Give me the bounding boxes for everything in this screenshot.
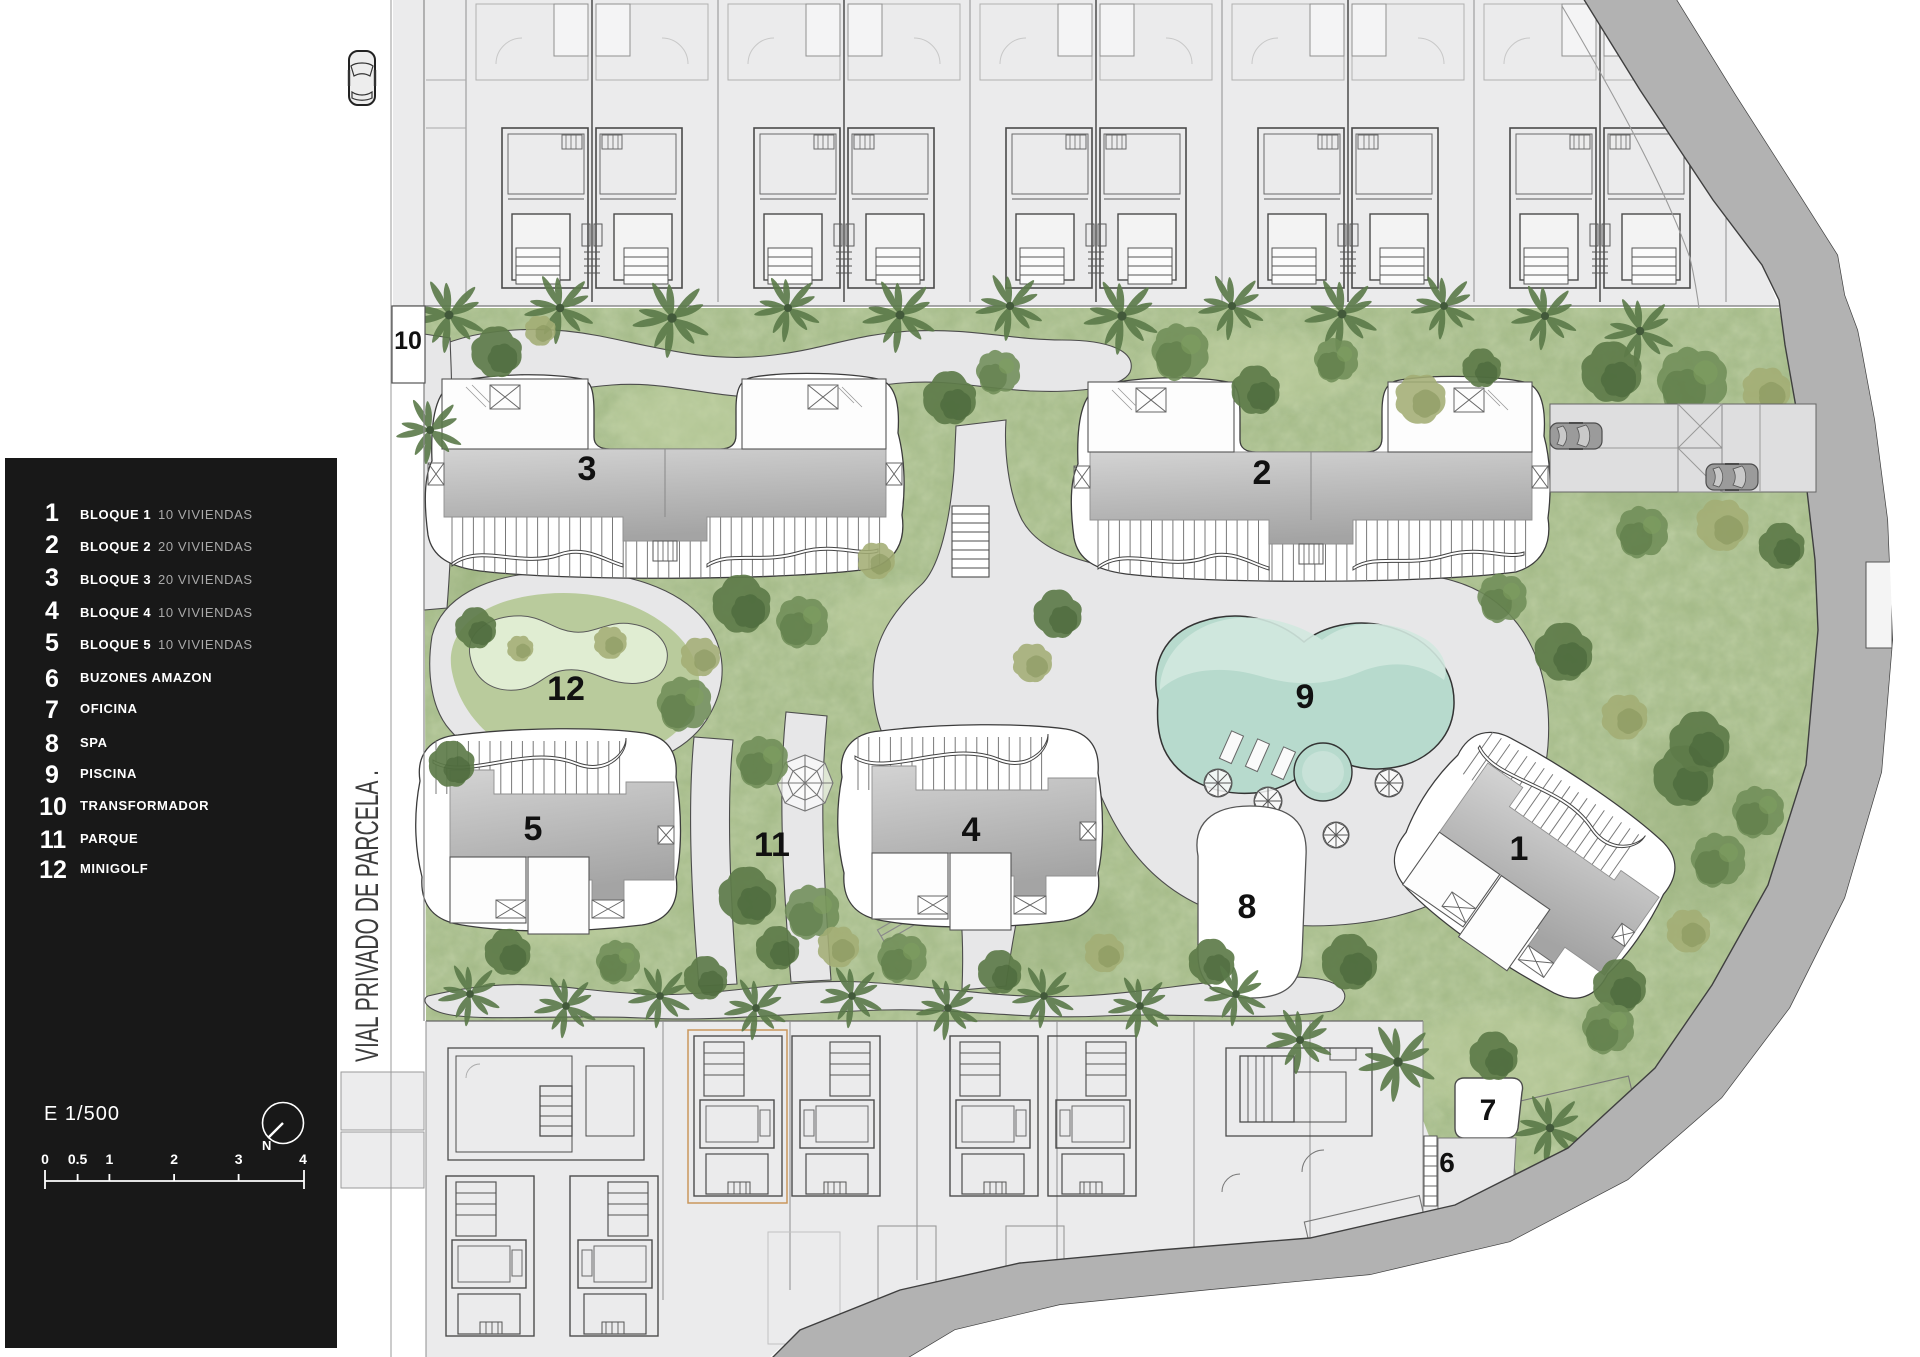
svg-text:3: 3 <box>235 1151 243 1167</box>
svg-text:10 VIVIENDAS: 10 VIVIENDAS <box>158 605 253 620</box>
svg-text:12: 12 <box>39 856 67 884</box>
svg-text:4: 4 <box>299 1151 307 1167</box>
svg-text:TRANSFORMADOR: TRANSFORMADOR <box>80 798 209 813</box>
svg-text:4: 4 <box>962 811 981 849</box>
svg-text:BLOQUE 4: BLOQUE 4 <box>80 605 151 620</box>
svg-text:BLOQUE 2: BLOQUE 2 <box>80 539 151 554</box>
svg-text:PARQUE: PARQUE <box>80 831 138 846</box>
svg-text:3: 3 <box>578 450 597 488</box>
svg-text:5: 5 <box>524 810 543 848</box>
svg-text:11: 11 <box>40 826 67 854</box>
svg-text:10 VIVIENDAS: 10 VIVIENDAS <box>158 507 253 522</box>
svg-text:MINIGOLF: MINIGOLF <box>80 861 148 876</box>
svg-text:BLOQUE 3: BLOQUE 3 <box>80 572 151 587</box>
svg-text:VIAL PRIVADO DE PARCELA .: VIAL PRIVADO DE PARCELA . <box>349 770 385 1062</box>
svg-text:0: 0 <box>41 1151 49 1167</box>
svg-text:BUZONES AMAZON: BUZONES AMAZON <box>80 670 212 685</box>
svg-text:12: 12 <box>547 670 585 708</box>
svg-text:9: 9 <box>1296 678 1315 716</box>
svg-text:7: 7 <box>45 696 59 724</box>
svg-text:1: 1 <box>106 1151 114 1167</box>
svg-text:2: 2 <box>1253 454 1272 492</box>
svg-text:20 VIVIENDAS: 20 VIVIENDAS <box>158 572 253 587</box>
svg-text:6: 6 <box>45 665 59 693</box>
svg-text:4: 4 <box>45 597 59 625</box>
svg-text:PISCINA: PISCINA <box>80 766 137 781</box>
svg-text:BLOQUE 5: BLOQUE 5 <box>80 637 151 652</box>
svg-text:1: 1 <box>45 499 59 527</box>
svg-text:20 VIVIENDAS: 20 VIVIENDAS <box>158 539 253 554</box>
svg-text:5: 5 <box>45 629 59 657</box>
svg-text:9: 9 <box>45 761 59 789</box>
svg-text:3: 3 <box>45 564 59 592</box>
svg-text:10: 10 <box>39 793 67 821</box>
svg-text:SPA: SPA <box>80 735 108 750</box>
svg-text:2: 2 <box>170 1151 178 1167</box>
svg-text:0.5: 0.5 <box>68 1151 88 1167</box>
svg-text:N: N <box>262 1138 271 1153</box>
svg-text:2: 2 <box>45 531 59 559</box>
svg-text:7: 7 <box>1480 1094 1497 1127</box>
svg-text:8: 8 <box>1238 888 1257 926</box>
svg-text:1: 1 <box>1510 830 1529 868</box>
svg-text:10 VIVIENDAS: 10 VIVIENDAS <box>158 637 253 652</box>
svg-text:11: 11 <box>754 826 790 864</box>
svg-text:6: 6 <box>1439 1147 1455 1178</box>
svg-text:BLOQUE 1: BLOQUE 1 <box>80 507 151 522</box>
svg-text:E 1/500: E 1/500 <box>44 1103 120 1125</box>
svg-text:8: 8 <box>45 730 59 758</box>
svg-text:OFICINA: OFICINA <box>80 701 138 716</box>
svg-text:10: 10 <box>394 327 422 355</box>
